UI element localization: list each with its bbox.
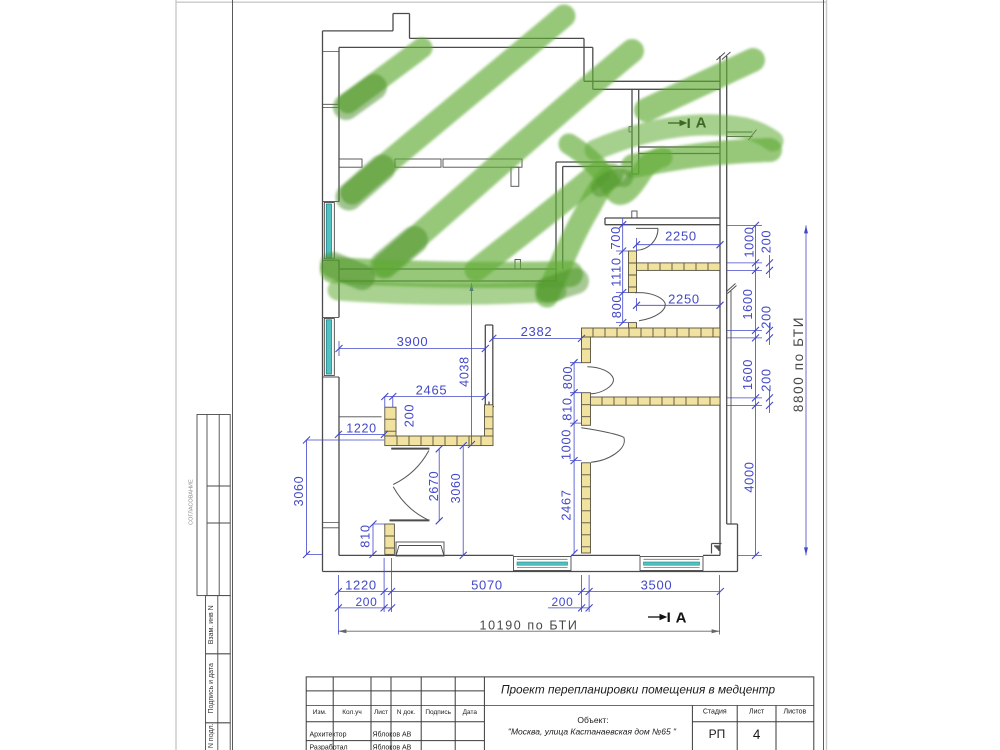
svg-text:4038: 4038 (458, 356, 472, 387)
svg-text:Объект:: Объект: (577, 715, 608, 725)
svg-text:1000: 1000 (742, 226, 757, 257)
svg-text:800: 800 (560, 366, 575, 389)
svg-text:A: A (676, 610, 687, 627)
svg-text:3900: 3900 (397, 334, 429, 349)
svg-text:СОГЛАСОВАНИЕ: СОГЛАСОВАНИЕ (189, 479, 195, 525)
svg-text:Яблоков АВ: Яблоков АВ (373, 731, 412, 739)
svg-text:200: 200 (551, 595, 573, 609)
svg-text:3060: 3060 (449, 473, 463, 504)
svg-text:Инв. N подл.: Инв. N подл. (208, 723, 215, 750)
svg-text:810: 810 (358, 524, 373, 547)
svg-text:2670: 2670 (427, 471, 441, 502)
svg-text:2465: 2465 (416, 383, 448, 398)
svg-text:Изм.: Изм. (313, 709, 327, 716)
svg-text:Архитектор: Архитектор (310, 732, 347, 739)
svg-text:3500: 3500 (641, 578, 673, 593)
svg-text:800: 800 (609, 295, 624, 318)
svg-text:3060: 3060 (292, 476, 306, 507)
svg-text:Кол.уч: Кол.уч (342, 709, 362, 716)
svg-text:"Москва, улица Кастанаевская: "Москва, улица Кастанаевская дом №65 " (508, 727, 677, 737)
svg-text:2250: 2250 (668, 291, 700, 306)
svg-text:4000: 4000 (742, 461, 757, 492)
svg-text:200: 200 (402, 404, 417, 427)
svg-text:1000: 1000 (559, 429, 574, 460)
svg-text:Лист: Лист (374, 709, 388, 716)
svg-text:Разработал: Разработал (310, 744, 348, 750)
svg-text:2250: 2250 (665, 229, 697, 244)
svg-text:Листов: Листов (784, 709, 807, 716)
svg-text:РП: РП (709, 727, 726, 741)
svg-text:2382: 2382 (521, 324, 553, 339)
svg-text:200: 200 (759, 368, 774, 391)
svg-text:Проект перепланировки помещени: Проект перепланировки помещения в медцен… (501, 683, 776, 697)
svg-text:2467: 2467 (559, 489, 574, 520)
svg-text:1600: 1600 (740, 288, 755, 319)
svg-text:1220: 1220 (345, 578, 377, 593)
svg-text:200: 200 (759, 305, 774, 328)
svg-text:700: 700 (608, 226, 623, 249)
svg-text:Дата: Дата (463, 709, 478, 716)
svg-text:Подпись: Подпись (425, 709, 451, 716)
svg-text:N док.: N док. (397, 709, 416, 716)
svg-text:Стадия: Стадия (703, 709, 727, 716)
svg-text:Лист: Лист (749, 709, 765, 716)
svg-text:8800 по БТИ: 8800 по БТИ (791, 316, 806, 412)
svg-text:Взам. инв N: Взам. инв N (208, 605, 215, 644)
svg-text:4: 4 (753, 727, 761, 742)
svg-text:1600: 1600 (740, 359, 755, 390)
svg-text:200: 200 (759, 230, 774, 253)
svg-text:1220: 1220 (346, 421, 377, 435)
svg-text:200: 200 (355, 595, 377, 609)
svg-text:1110: 1110 (609, 257, 624, 286)
svg-text:810: 810 (560, 397, 575, 420)
svg-text:Яблоков АВ: Яблоков АВ (373, 744, 412, 750)
svg-text:Подпись и дата: Подпись и дата (208, 663, 215, 713)
svg-text:5070: 5070 (471, 578, 503, 593)
svg-text:10190 по БТИ: 10190 по БТИ (480, 619, 579, 633)
